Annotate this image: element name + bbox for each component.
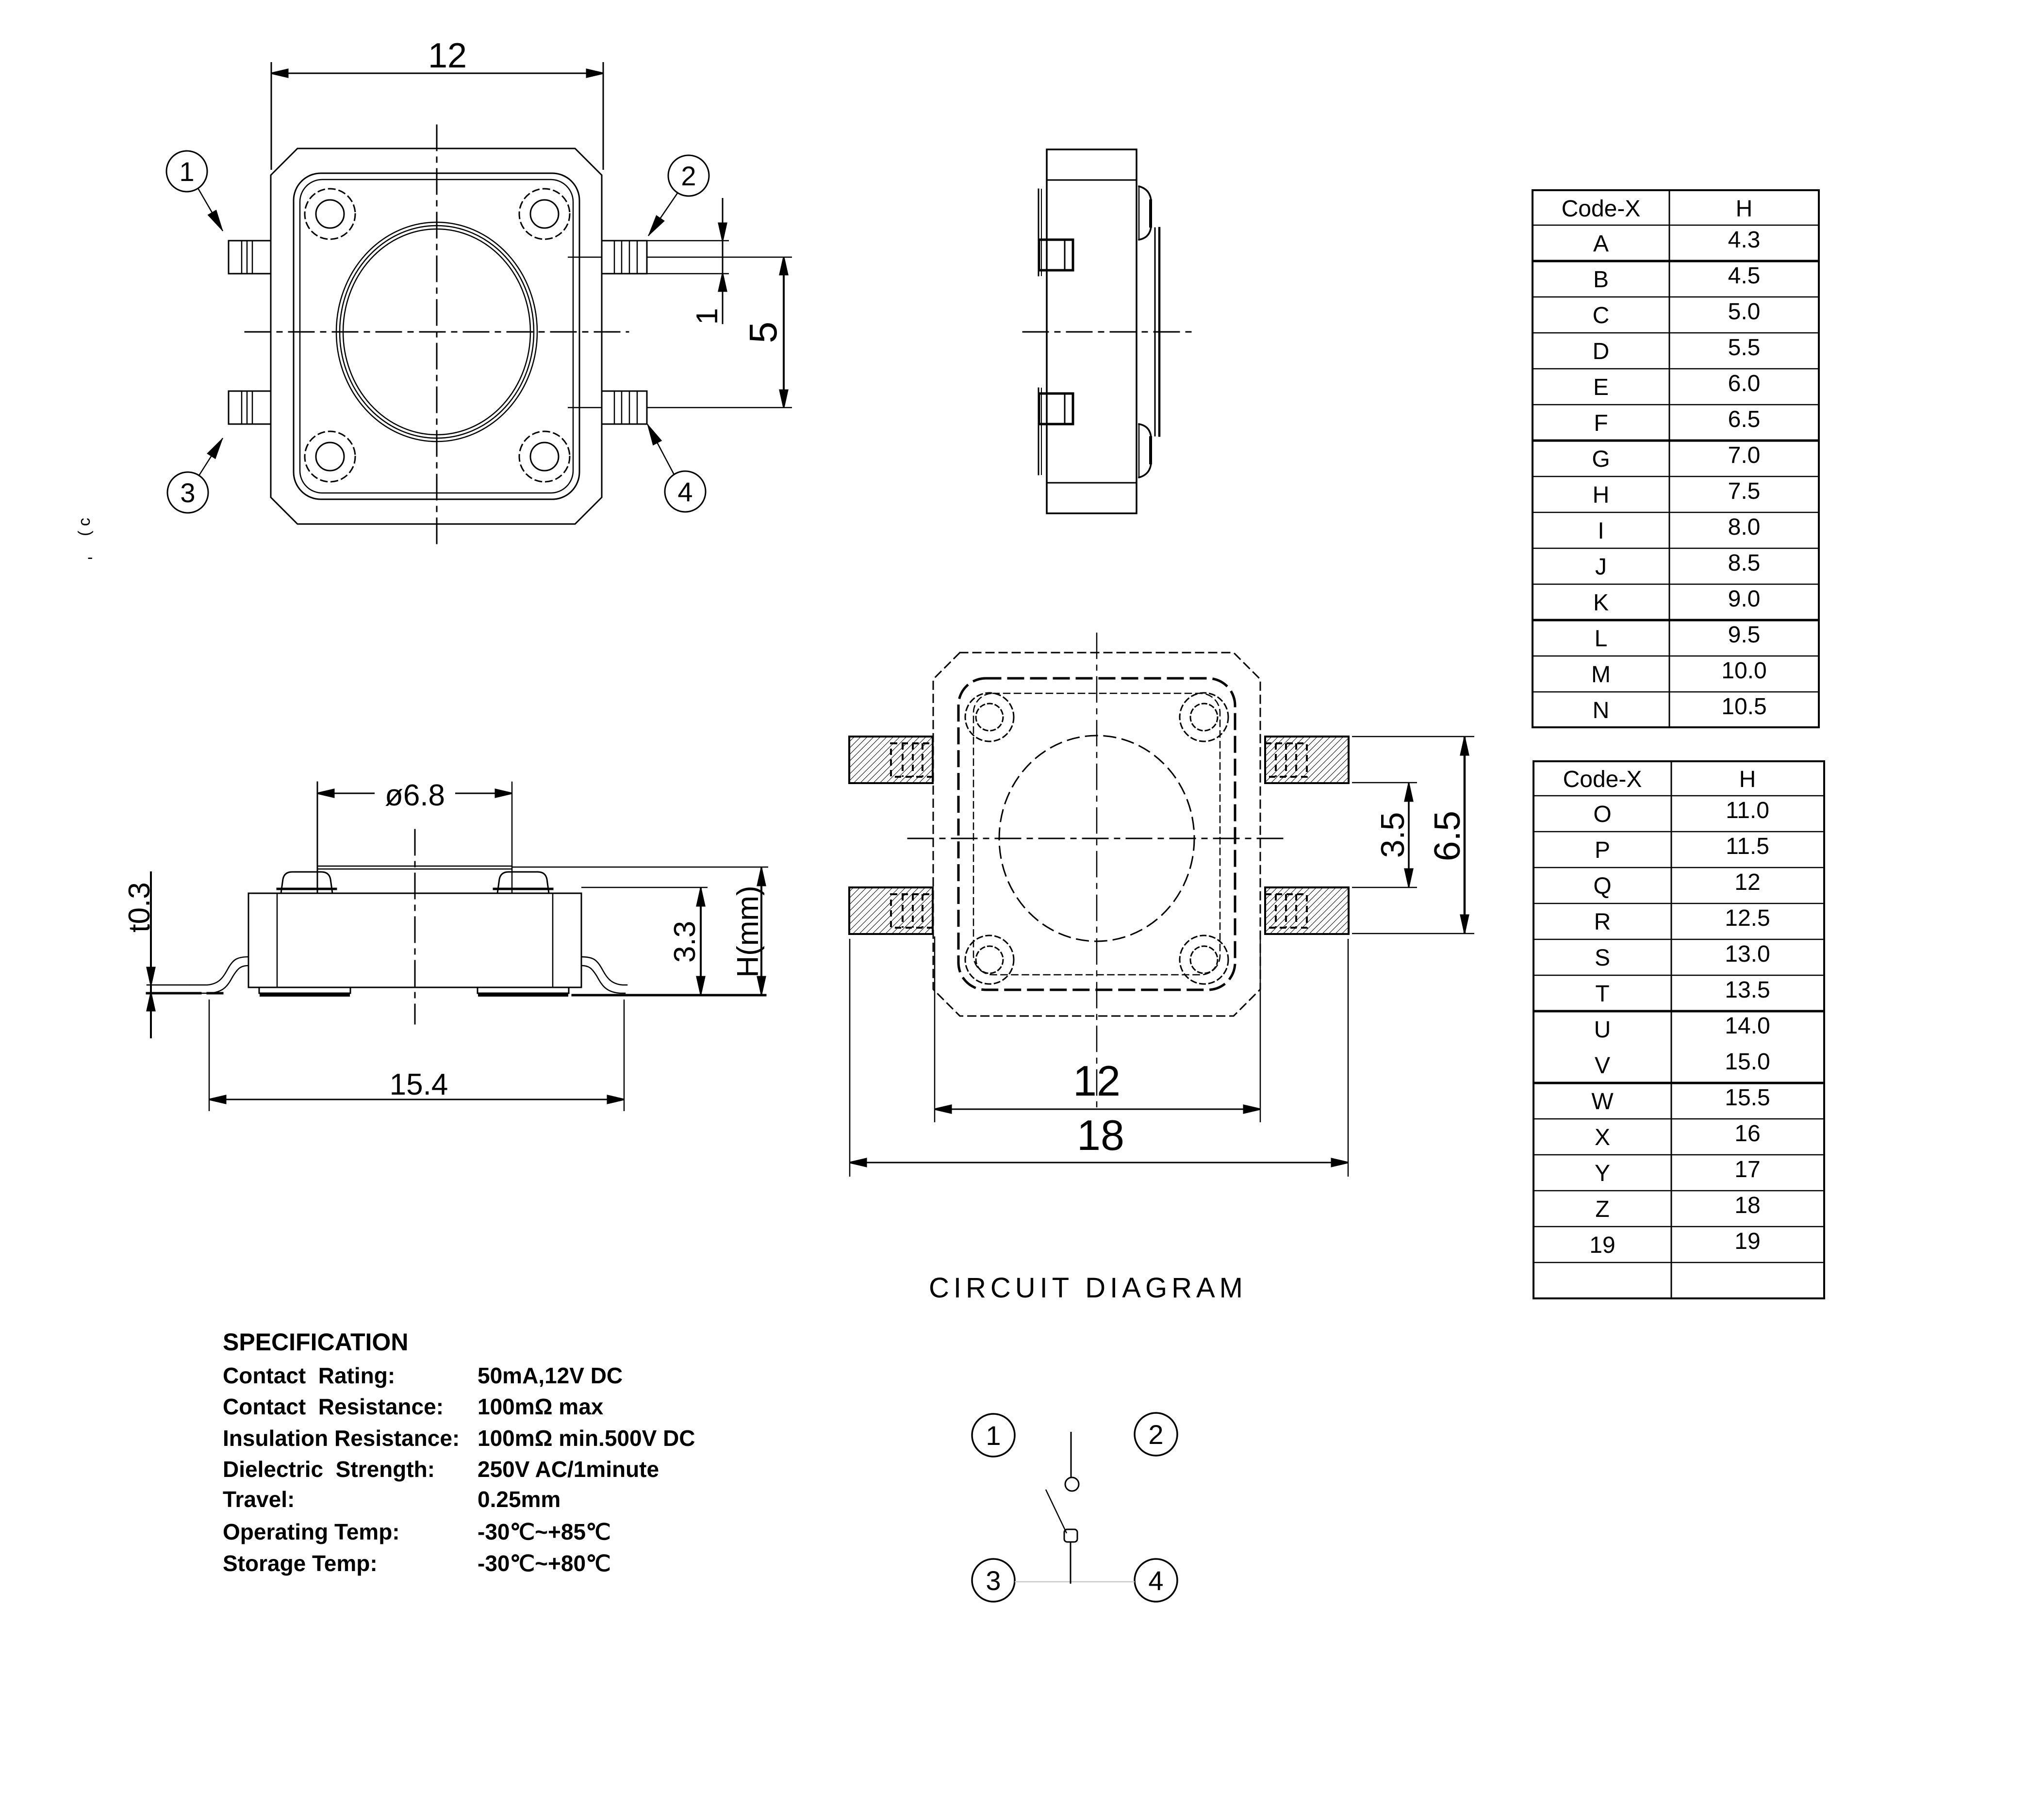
- svg-text:6.5: 6.5: [1728, 407, 1761, 432]
- svg-text:-30℃~+80℃: -30℃~+80℃: [478, 1551, 611, 1576]
- svg-text:CIRCUIT DIAGRAM: CIRCUIT DIAGRAM: [929, 1272, 1247, 1304]
- svg-text:Dielectric Strength:: Dielectric Strength:: [223, 1457, 435, 1482]
- svg-text:E: E: [1593, 375, 1609, 400]
- svg-text:W: W: [1591, 1089, 1614, 1115]
- svg-text:P: P: [1595, 837, 1610, 863]
- svg-text:t0.3: t0.3: [123, 882, 156, 932]
- svg-text:13.5: 13.5: [1725, 977, 1770, 1003]
- svg-text:Insulation Resistance:: Insulation Resistance:: [223, 1426, 460, 1451]
- svg-text:I: I: [1598, 518, 1604, 544]
- svg-text:3.3: 3.3: [668, 921, 702, 963]
- svg-text:H: H: [1739, 767, 1756, 792]
- svg-text:5.5: 5.5: [1728, 335, 1761, 361]
- svg-text:B: B: [1593, 267, 1609, 293]
- svg-text:Y: Y: [1595, 1161, 1610, 1186]
- svg-text:15.4: 15.4: [390, 1068, 448, 1101]
- svg-text:4.3: 4.3: [1728, 227, 1761, 253]
- svg-text:17: 17: [1734, 1157, 1760, 1182]
- svg-text:Contact Resistance:: Contact Resistance:: [223, 1394, 444, 1419]
- svg-text:1: 1: [691, 308, 724, 325]
- svg-text:12: 12: [1734, 869, 1760, 895]
- svg-text:S: S: [1595, 945, 1610, 971]
- svg-text:10.5: 10.5: [1721, 694, 1766, 720]
- svg-text:C: C: [1593, 303, 1610, 328]
- svg-text:2: 2: [681, 161, 696, 191]
- svg-text:11.5: 11.5: [1726, 834, 1769, 859]
- svg-text:3: 3: [180, 477, 195, 508]
- svg-text:A: A: [1593, 231, 1609, 257]
- svg-text:Storage Temp:: Storage Temp:: [223, 1551, 378, 1576]
- svg-text:Code-X: Code-X: [1563, 767, 1642, 792]
- svg-text:J: J: [1595, 554, 1607, 580]
- svg-text:6.0: 6.0: [1728, 371, 1761, 396]
- svg-text:R: R: [1594, 909, 1611, 935]
- svg-text:T: T: [1595, 981, 1609, 1007]
- svg-text:1: 1: [179, 156, 194, 187]
- svg-text:F: F: [1594, 410, 1608, 436]
- svg-text:3: 3: [986, 1565, 1001, 1596]
- svg-text:7.5: 7.5: [1728, 478, 1761, 504]
- svg-text:15.0: 15.0: [1725, 1049, 1770, 1075]
- svg-text:18: 18: [1077, 1111, 1124, 1159]
- svg-text:V: V: [1595, 1053, 1610, 1079]
- svg-text:M: M: [1591, 662, 1611, 688]
- svg-text:ø6.8: ø6.8: [385, 779, 445, 812]
- svg-text:U: U: [1594, 1017, 1611, 1043]
- svg-text:15.5: 15.5: [1725, 1085, 1770, 1111]
- svg-text:10.0: 10.0: [1721, 658, 1766, 684]
- svg-text:7.0: 7.0: [1728, 443, 1761, 468]
- svg-text:12: 12: [1073, 1057, 1121, 1105]
- svg-text:2: 2: [1148, 1419, 1163, 1450]
- svg-text:19: 19: [1734, 1229, 1760, 1254]
- svg-text:4: 4: [1148, 1565, 1163, 1596]
- svg-text:Contact Rating:: Contact Rating:: [223, 1363, 395, 1388]
- svg-text:8.0: 8.0: [1728, 514, 1761, 540]
- svg-text:X: X: [1595, 1125, 1610, 1150]
- svg-text:5: 5: [742, 322, 785, 344]
- svg-text:9.5: 9.5: [1728, 622, 1761, 648]
- svg-text:Travel:: Travel:: [223, 1487, 295, 1512]
- svg-text:( c: ( c: [75, 518, 94, 536]
- svg-text:SPECIFICATION: SPECIFICATION: [223, 1328, 408, 1356]
- svg-text:-: -: [87, 548, 93, 567]
- svg-text:Code-X: Code-X: [1562, 196, 1641, 222]
- svg-text:O: O: [1593, 802, 1611, 827]
- svg-text:N: N: [1593, 698, 1610, 723]
- svg-text:5.0: 5.0: [1728, 299, 1761, 325]
- svg-text:12: 12: [428, 36, 467, 75]
- svg-text:Z: Z: [1595, 1197, 1609, 1222]
- svg-text:H(mm): H(mm): [731, 885, 765, 977]
- svg-text:19: 19: [1589, 1232, 1615, 1258]
- svg-text:1: 1: [986, 1420, 1001, 1451]
- svg-text:H: H: [1736, 196, 1753, 222]
- svg-text:0.25mm: 0.25mm: [478, 1487, 560, 1512]
- svg-text:16: 16: [1734, 1121, 1760, 1147]
- svg-text:Q: Q: [1593, 873, 1611, 899]
- svg-text:100mΩ max: 100mΩ max: [478, 1394, 604, 1419]
- svg-text:9.0: 9.0: [1728, 586, 1761, 612]
- svg-text:6.5: 6.5: [1427, 811, 1467, 861]
- svg-text:13.0: 13.0: [1725, 941, 1770, 967]
- svg-text:H: H: [1593, 482, 1610, 508]
- svg-text:8.5: 8.5: [1728, 550, 1761, 576]
- svg-text:4.5: 4.5: [1728, 263, 1761, 289]
- svg-text:4: 4: [677, 476, 692, 507]
- svg-text:K: K: [1593, 590, 1609, 616]
- svg-text:Operating Temp:: Operating Temp:: [223, 1519, 400, 1544]
- svg-text:11.0: 11.0: [1726, 798, 1769, 823]
- svg-text:D: D: [1593, 339, 1610, 364]
- svg-text:-30℃~+85℃: -30℃~+85℃: [478, 1519, 611, 1544]
- svg-text:3.5: 3.5: [1374, 812, 1411, 858]
- svg-text:250V AC/1minute: 250V AC/1minute: [478, 1457, 659, 1482]
- svg-text:18: 18: [1734, 1193, 1760, 1218]
- svg-text:L: L: [1595, 626, 1608, 652]
- svg-text:14.0: 14.0: [1725, 1013, 1770, 1039]
- svg-text:12.5: 12.5: [1725, 905, 1770, 931]
- svg-text:50mA,12V DC: 50mA,12V DC: [478, 1363, 623, 1388]
- svg-text:G: G: [1592, 446, 1610, 472]
- svg-text:100mΩ min.500V DC: 100mΩ min.500V DC: [478, 1426, 695, 1451]
